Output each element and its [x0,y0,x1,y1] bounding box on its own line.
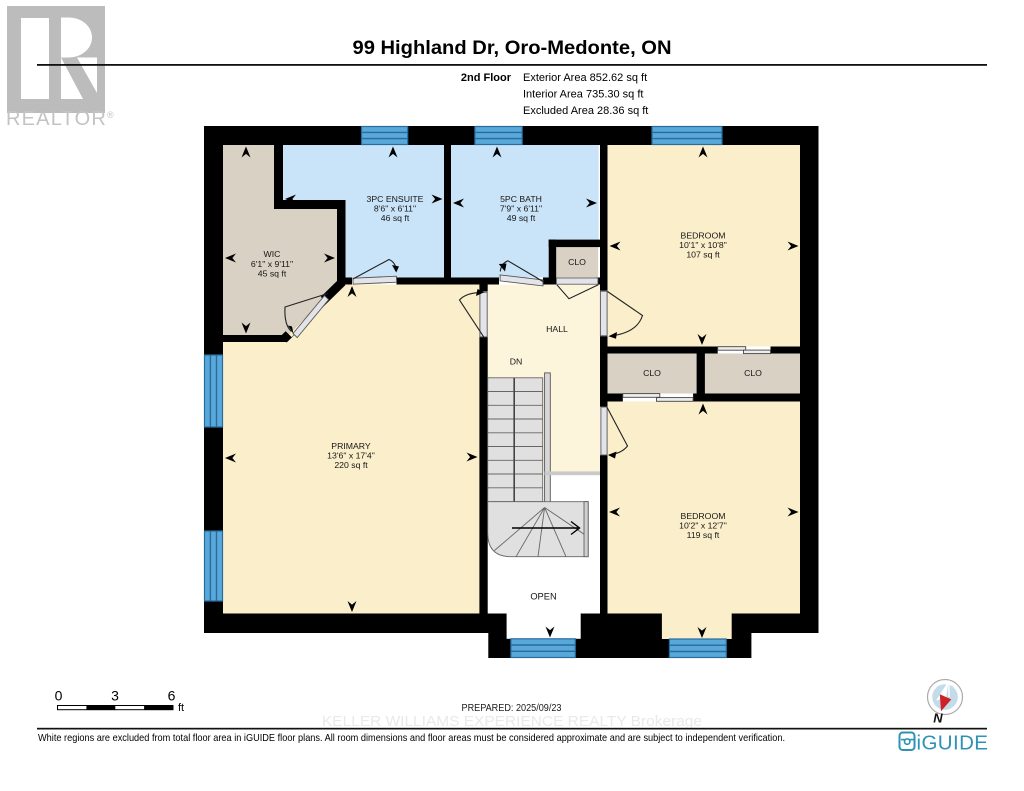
svg-text:10'2" x 12'7": 10'2" x 12'7" [679,521,727,531]
svg-text:119 sq ft: 119 sq ft [687,530,720,540]
svg-text:BEDROOM: BEDROOM [681,231,726,241]
svg-text:N: N [933,711,943,726]
svg-text:6'1" x 9'11": 6'1" x 9'11" [251,259,293,269]
svg-text:WIC: WIC [264,249,281,259]
svg-text:KELLER WILLIAMS EXPERIENCE REA: KELLER WILLIAMS EXPERIENCE REALTY Broker… [322,714,702,730]
svg-text:PRIMARY: PRIMARY [331,441,371,451]
svg-text:BEDROOM: BEDROOM [681,511,726,521]
svg-text:OPEN: OPEN [530,592,556,602]
svg-text:46 sq ft: 46 sq ft [381,213,410,223]
svg-text:7'9" x 6'11": 7'9" x 6'11" [500,204,542,214]
svg-text:6: 6 [168,688,176,704]
svg-text:99 Highland Dr, Oro-Medonte, O: 99 Highland Dr, Oro-Medonte, ON [353,37,672,59]
svg-text:220 sq ft: 220 sq ft [334,460,368,470]
svg-text:REALTOR®: REALTOR® [6,108,115,130]
svg-text:CLO: CLO [744,368,762,378]
svg-text:CLO: CLO [568,257,586,267]
svg-text:45 sq ft: 45 sq ft [258,269,287,279]
svg-text:White regions are excluded fro: White regions are excluded from total fl… [38,733,785,744]
svg-text:Excluded Area 28.36 sq ft: Excluded Area 28.36 sq ft [523,105,648,117]
svg-text:10'1" x 10'8": 10'1" x 10'8" [679,240,727,250]
svg-text:8'6" x 6'11": 8'6" x 6'11" [374,204,416,214]
svg-text:ft: ft [178,702,184,714]
svg-text:3PC ENSUITE: 3PC ENSUITE [367,194,424,204]
svg-text:5PC BATH: 5PC BATH [500,194,542,204]
svg-text:Interior Area 735.30 sq ft: Interior Area 735.30 sq ft [523,89,643,101]
svg-text:PREPARED: 2025/09/23: PREPARED: 2025/09/23 [462,703,562,714]
svg-text:HALL: HALL [546,324,568,334]
svg-text:49 sq ft: 49 sq ft [507,213,536,223]
svg-text:107 sq ft: 107 sq ft [686,250,720,260]
svg-text:CLO: CLO [643,368,661,378]
svg-text:2nd Floor: 2nd Floor [461,72,512,84]
svg-text:0: 0 [55,688,63,704]
svg-text:3: 3 [111,688,119,704]
svg-text:13'6" x 17'4": 13'6" x 17'4" [327,451,375,461]
svg-text:iGUIDE: iGUIDE [917,732,989,755]
svg-text:DN: DN [510,357,523,367]
svg-text:Exterior Area 852.62 sq ft: Exterior Area 852.62 sq ft [523,72,647,84]
